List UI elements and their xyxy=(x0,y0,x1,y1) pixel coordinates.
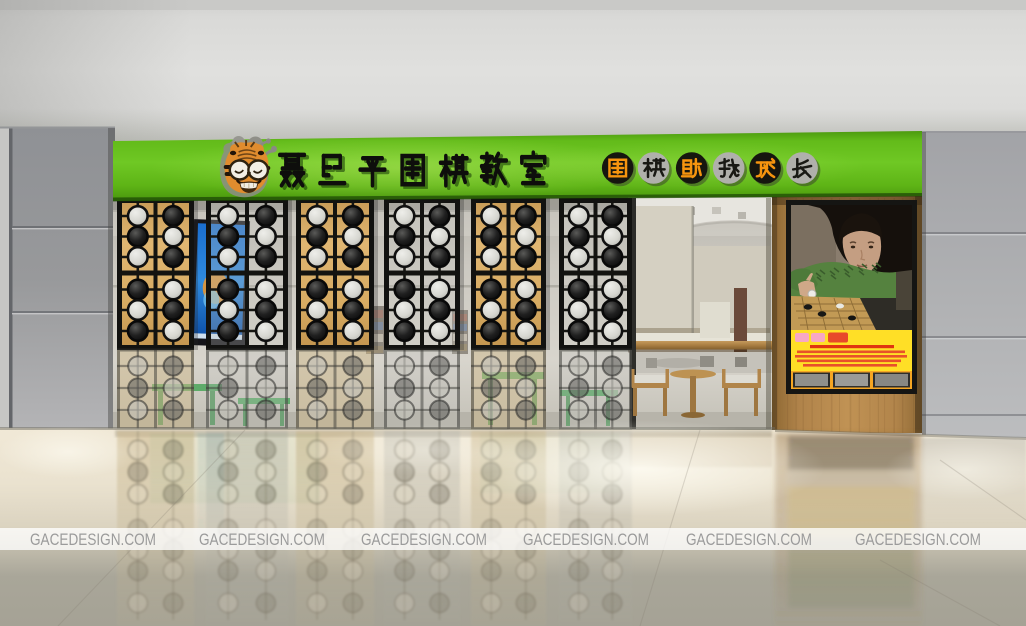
svg-text:GACEDESIGN.COM: GACEDESIGN.COM xyxy=(199,531,325,549)
svg-text:GACEDESIGN.COM: GACEDESIGN.COM xyxy=(686,531,812,549)
svg-text:GACEDESIGN.COM: GACEDESIGN.COM xyxy=(523,531,649,549)
svg-text:GACEDESIGN.COM: GACEDESIGN.COM xyxy=(361,531,487,549)
svg-text:GACEDESIGN.COM: GACEDESIGN.COM xyxy=(30,531,156,549)
svg-text:GACEDESIGN.COM: GACEDESIGN.COM xyxy=(855,531,981,549)
